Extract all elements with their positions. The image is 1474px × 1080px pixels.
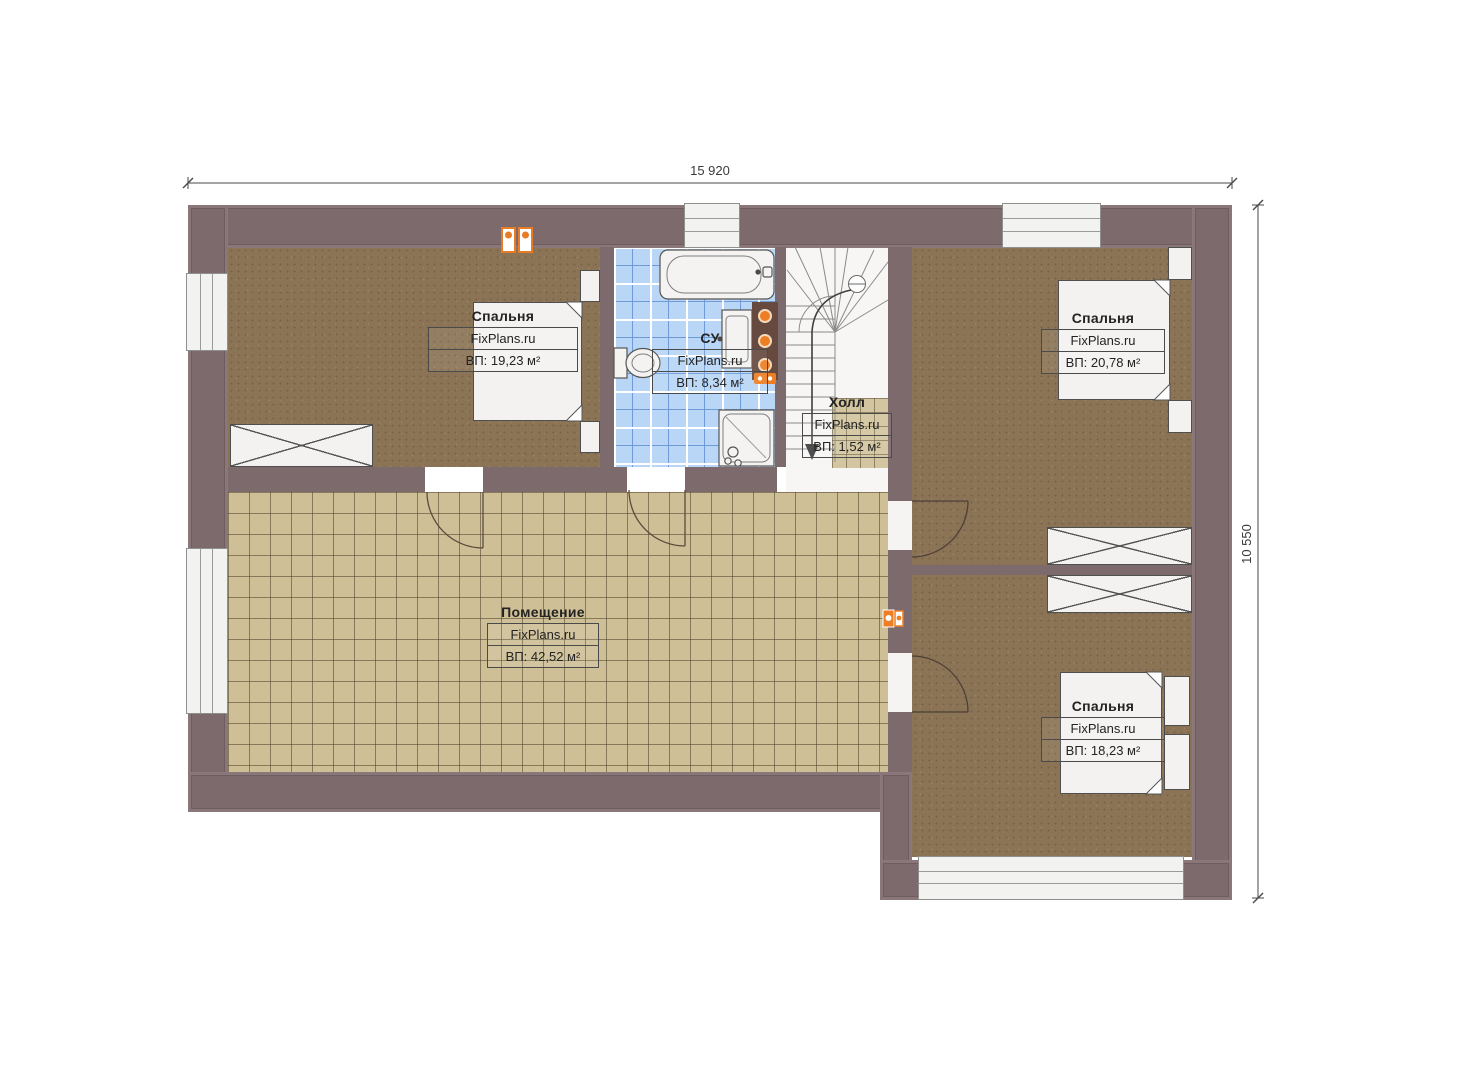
nightstand-top-right-a	[1168, 247, 1192, 280]
door-opening-bedroom-bottom-right	[888, 653, 912, 712]
dimension-height-label: 10 550	[1239, 504, 1255, 584]
area-label: ВП: 1,52 м²	[802, 435, 892, 458]
window-top-bathroom	[684, 203, 740, 248]
room-label-bedroom-top-left: Спальня FixPlans.ru ВП: 19,23 м²	[428, 308, 578, 372]
watermark: FixPlans.ru	[1041, 717, 1165, 740]
room-name: Спальня	[1072, 698, 1135, 714]
nightstand-top-right-b	[1168, 400, 1192, 433]
area-label: ВП: 42,52 м²	[487, 645, 599, 668]
wardrobe-bottom-right	[1047, 575, 1192, 613]
room-name: Помещение	[501, 604, 585, 620]
area-label: ВП: 19,23 м²	[428, 349, 578, 372]
wall-bedroom-bathroom	[600, 247, 614, 467]
room-label-bedroom-bottom-right: Спальня FixPlans.ru ВП: 18,23 м²	[1041, 698, 1165, 762]
nightstand-bottom-right-a	[1164, 676, 1190, 726]
wall-bathroom-stairs	[775, 247, 786, 467]
watermark: FixPlans.ru	[802, 413, 892, 436]
wall-exterior-bottom-main	[188, 772, 912, 812]
nightstand-top-left-b	[580, 421, 600, 453]
watermark: FixPlans.ru	[487, 623, 599, 646]
watermark: FixPlans.ru	[428, 327, 578, 350]
wardrobe-top-left	[230, 424, 373, 467]
wall-interior-horizontal-b	[483, 467, 627, 492]
wall-between-right-bedrooms	[912, 565, 1192, 575]
watermark: FixPlans.ru	[652, 349, 768, 372]
room-label-bathroom: СУ FixPlans.ru ВП: 8,34 м²	[652, 330, 768, 394]
nightstand-top-left-a	[580, 270, 600, 302]
door-opening-bedroom-top-right	[888, 501, 912, 550]
window-bottom-extension	[918, 856, 1184, 900]
window-left-lower	[186, 548, 228, 714]
window-left-upper	[186, 273, 228, 351]
dimension-width-label: 15 920	[655, 163, 765, 178]
room-label-hall: Холл FixPlans.ru ВП: 1,52 м²	[802, 394, 892, 458]
room-name: Холл	[829, 394, 865, 410]
wall-interior-horizontal-a	[228, 467, 425, 492]
room-label-bedroom-top-right: Спальня FixPlans.ru ВП: 20,78 м²	[1041, 310, 1165, 374]
room-name: Спальня	[1072, 310, 1135, 326]
area-label: ВП: 8,34 м²	[652, 371, 768, 394]
wall-interior-horizontal-c	[685, 467, 777, 492]
floor-plan-canvas: 15 920 10 550 Спальня FixPlans.ru ВП: 19…	[0, 0, 1474, 1080]
nightstand-bottom-right-b	[1164, 734, 1190, 790]
area-label: ВП: 20,78 м²	[1041, 351, 1165, 374]
room-name: СУ	[700, 330, 719, 346]
room-name: Спальня	[472, 308, 535, 324]
wardrobe-top-right	[1047, 527, 1192, 565]
dimension-line-top	[183, 177, 1237, 189]
area-label: ВП: 18,23 м²	[1041, 739, 1165, 762]
wall-exterior-right	[1192, 205, 1232, 900]
watermark: FixPlans.ru	[1041, 329, 1165, 352]
room-label-main-room: Помещение FixPlans.ru ВП: 42,52 м²	[487, 604, 599, 668]
window-top-bedroom-right	[1002, 203, 1101, 248]
